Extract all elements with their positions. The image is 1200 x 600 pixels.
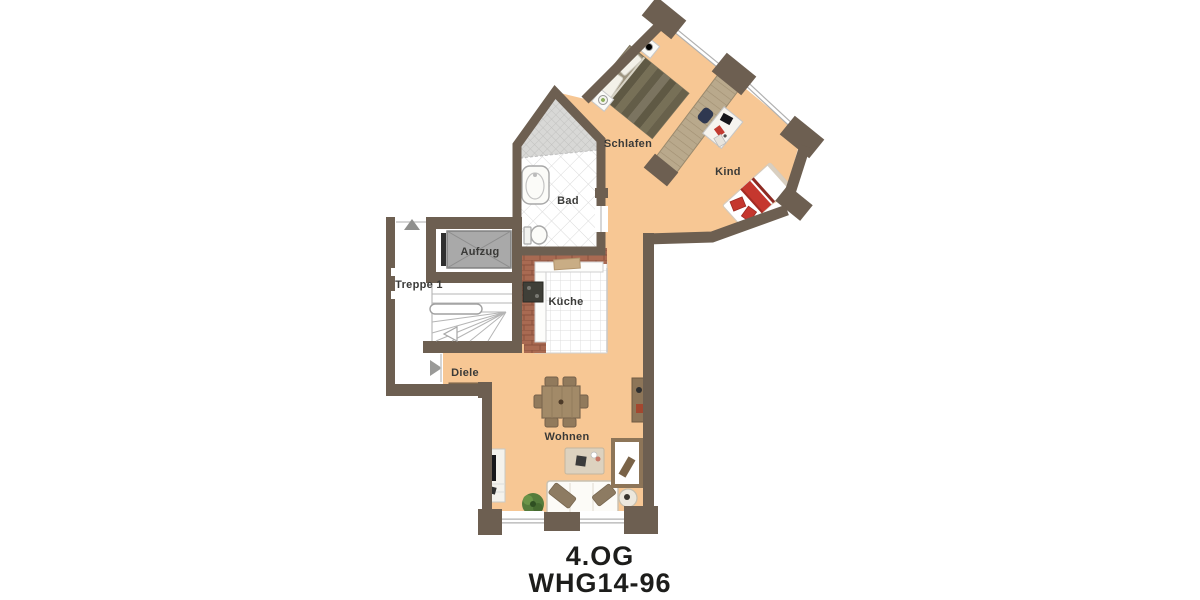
- kitchen-board: [554, 258, 581, 270]
- unit-title: WHG14-96: [528, 568, 671, 598]
- bathtub-icon: [522, 166, 549, 204]
- room-label-treppe1: Treppe 1: [395, 279, 443, 291]
- room-label-diele: Diele: [451, 367, 479, 379]
- side-table: [619, 489, 637, 507]
- stairwell-up-arrow-icon: [404, 219, 420, 230]
- room-label-bad: Bad: [557, 195, 579, 207]
- entrance-arrow-icon: [430, 360, 442, 376]
- stove: [523, 282, 543, 302]
- shelf-unit: [613, 440, 641, 486]
- room-label-wohnen: Wohnen: [545, 431, 590, 443]
- elevator-door: [441, 233, 446, 266]
- floorplan-page: Schlafen Kind Bad Aufzug Treppe 1 Küche …: [0, 0, 1200, 600]
- room-label-kueche: Küche: [548, 296, 583, 308]
- stair-handrail: [430, 304, 482, 314]
- room-label-aufzug: Aufzug: [460, 246, 499, 258]
- sofa: [547, 481, 618, 515]
- floorplan-canvas: Schlafen Kind Bad Aufzug Treppe 1 Küche …: [0, 0, 1200, 600]
- room-label-kind: Kind: [715, 166, 741, 178]
- floor-title: 4.OG: [566, 541, 635, 571]
- wall-stub: [624, 506, 658, 534]
- toilet-icon: [524, 226, 547, 244]
- room-label-schlafen: Schlafen: [604, 138, 652, 150]
- coffee-table: [565, 448, 604, 474]
- staircase: [430, 283, 512, 341]
